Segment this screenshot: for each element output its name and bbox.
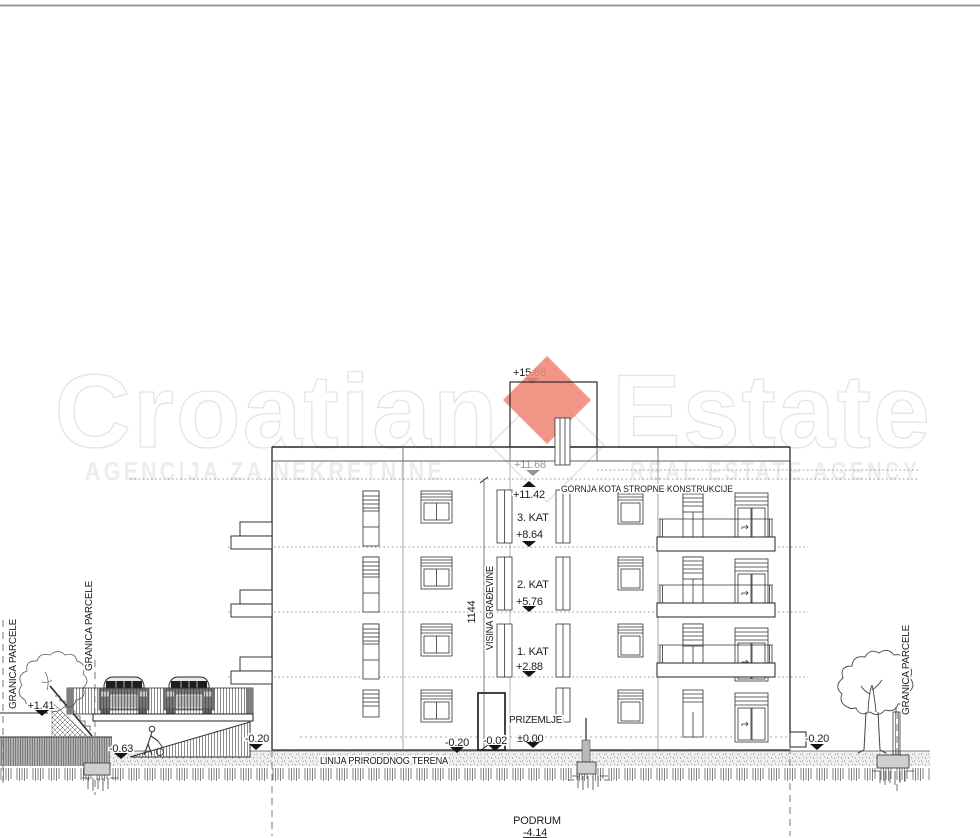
driveway-ramp: [130, 722, 250, 757]
ground-floor-windows: [363, 688, 768, 750]
parcel-boundary-label-left-inner: GRANICA PARCELE: [84, 580, 95, 671]
right-wall-footing: [790, 732, 806, 747]
watermark-brand-left: Croatian: [55, 354, 500, 470]
architectural-elevation-drawing: Croatian Estate AGENCIJA ZA NEKRETNINE R…: [0, 0, 980, 838]
floor1-name: 1. KAT: [517, 646, 549, 658]
watermark-brand-right: Estate: [612, 354, 932, 470]
floor1-marker-icon: [522, 671, 536, 677]
left-terrain-marker-icon: [249, 744, 263, 750]
floor3-name: 3. KAT: [517, 512, 549, 524]
parking-fence: [67, 688, 253, 714]
top-slab-elevation: +11.42: [513, 489, 545, 501]
basement-name: PODRUM: [513, 815, 561, 827]
right-terrain-elevation: -0.20: [805, 733, 829, 745]
terrain-line-label: LINIJA PRIRODDNOG TERENA: [320, 756, 448, 767]
annotation-labels: +11.42 GORNJA KOTA STROPNE KONSTRUKCIJE …: [8, 481, 912, 838]
height-dimension-label: VISINA GRAĐEVINE: [485, 566, 496, 650]
left-balconies: [231, 522, 272, 684]
ground-floor-name: PRIZEMLJE: [509, 715, 563, 726]
ground-floor-marker-icon: [526, 742, 540, 748]
elevation-canvas: Croatian Estate AGENCIJA ZA NEKRETNINE R…: [0, 0, 980, 838]
watermark-tagline-right: REAL ESTATE AGENCY: [630, 456, 920, 486]
right-terrain-marker-icon: [810, 744, 824, 750]
parcel-boundary-label-right: GRANICA PARCELE: [901, 624, 912, 715]
height-dimension-value: 1144: [466, 600, 478, 623]
floor3-elevation: +8.64: [516, 529, 543, 541]
agency-logo: [490, 356, 604, 502]
floor3-marker-icon: [522, 541, 536, 547]
watermark-tagline-left: AGENCIJA ZA NEKRETNINE: [85, 456, 445, 486]
floor2-name: 2. KAT: [517, 579, 549, 591]
tower-window: [555, 418, 570, 465]
parcel-boundary-label-left-outer: GRANICA PARCELE: [8, 618, 19, 709]
parking-deck-slab: [93, 714, 253, 721]
left-terrain-elevation: -0.20: [245, 733, 269, 745]
basement-elevation: -4.14: [523, 827, 547, 838]
top-slab-note: GORNJA KOTA STROPNE KONSTRUKCIJE: [561, 484, 733, 495]
watermark: Croatian Estate AGENCIJA ZA NEKRETNINE R…: [55, 354, 933, 486]
floor2-marker-icon: [522, 606, 536, 612]
